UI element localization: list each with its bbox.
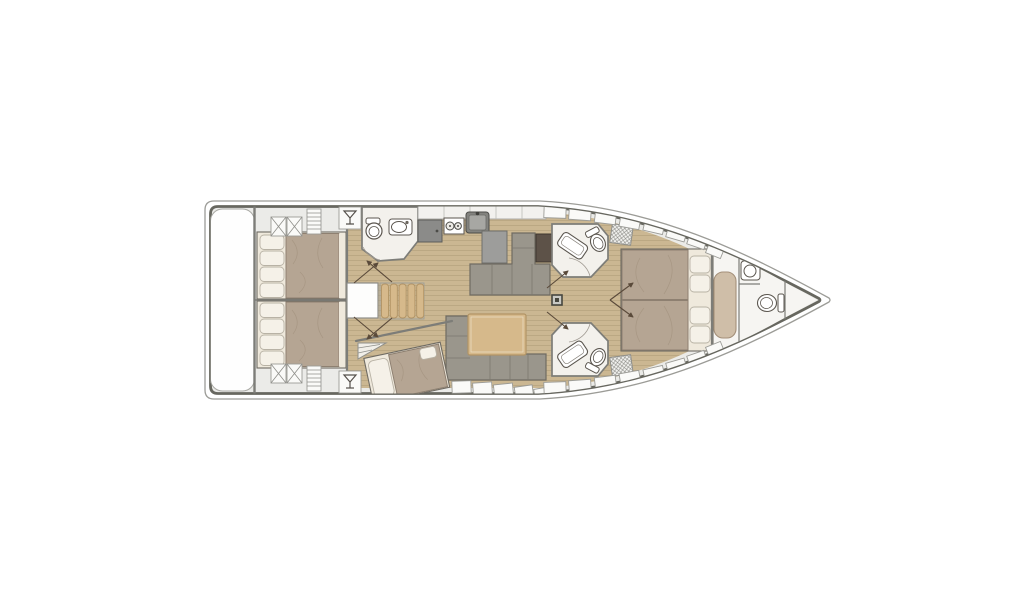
stove-icon xyxy=(444,218,464,234)
bow-bench xyxy=(714,272,736,338)
pillow xyxy=(260,267,284,282)
stair-tread xyxy=(390,284,397,318)
pillow xyxy=(690,326,710,343)
pillow xyxy=(260,235,284,250)
double-bed-mattress xyxy=(286,302,339,367)
swim-platform-deck xyxy=(211,209,255,391)
stair-tread xyxy=(417,284,424,318)
bed-foot-runner xyxy=(339,234,346,299)
aft-cabin-starboard xyxy=(257,301,346,368)
pillow xyxy=(260,351,284,366)
mast-base-icon xyxy=(552,295,562,305)
aft-cabin-port xyxy=(257,232,346,299)
sink-icon xyxy=(389,219,412,235)
pillow xyxy=(260,319,284,334)
toilet-icon xyxy=(366,218,382,239)
pillow xyxy=(690,275,710,292)
stair-tread xyxy=(382,284,389,318)
double-bed-mattress xyxy=(622,301,688,351)
pillow xyxy=(260,283,284,298)
pillow xyxy=(260,303,284,318)
yacht-floor-plan-page xyxy=(0,0,1024,600)
saloon-table xyxy=(468,314,526,355)
stair-tread xyxy=(408,284,415,318)
aft-head xyxy=(362,207,418,261)
sink-icon xyxy=(466,212,489,233)
pillow xyxy=(260,335,284,350)
companionway-stairs xyxy=(380,283,424,319)
galley-peninsula xyxy=(482,231,507,263)
companionway-hatch xyxy=(347,283,378,318)
yacht-floor-plan xyxy=(0,0,1024,600)
pillow xyxy=(690,307,710,324)
double-bed-mattress xyxy=(622,250,688,300)
owner-cabin xyxy=(621,249,713,351)
swim-platform xyxy=(211,207,255,393)
pillow xyxy=(690,256,710,273)
pillow xyxy=(260,251,284,266)
stair-tread xyxy=(399,284,406,318)
fridge-icon xyxy=(418,220,442,242)
toilet-icon xyxy=(758,294,785,312)
bed-foot-runner xyxy=(339,302,346,367)
